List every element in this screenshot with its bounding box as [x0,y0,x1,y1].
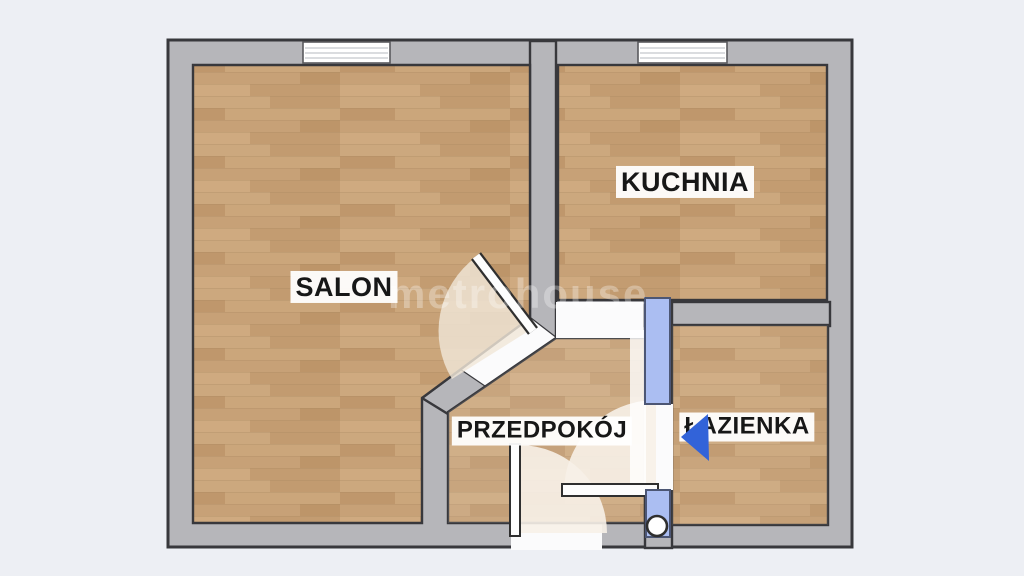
window-kuchnia [638,42,727,63]
floor-plan-canvas: metrohouse SALON KUCHNIA PRZEDPOKÓJ ŁAZI… [0,0,1024,576]
entry-door-leaf [510,444,520,536]
door-hinge-icon [647,516,667,536]
room-label-salon: SALON [291,271,398,303]
window-salon [303,42,390,63]
divider-wall [530,41,556,338]
floor-plan-drawing [0,0,1024,576]
lazienka-door-panel-top [645,298,670,404]
lazienka-door-leaf [562,484,658,496]
room-label-lazienka: ŁAZIENKA [679,413,814,442]
room-label-kuchnia: KUCHNIA [616,166,754,198]
room-label-przedpokoj: PRZEDPOKÓJ [452,417,632,446]
lazienka-door-clearance [630,330,646,490]
